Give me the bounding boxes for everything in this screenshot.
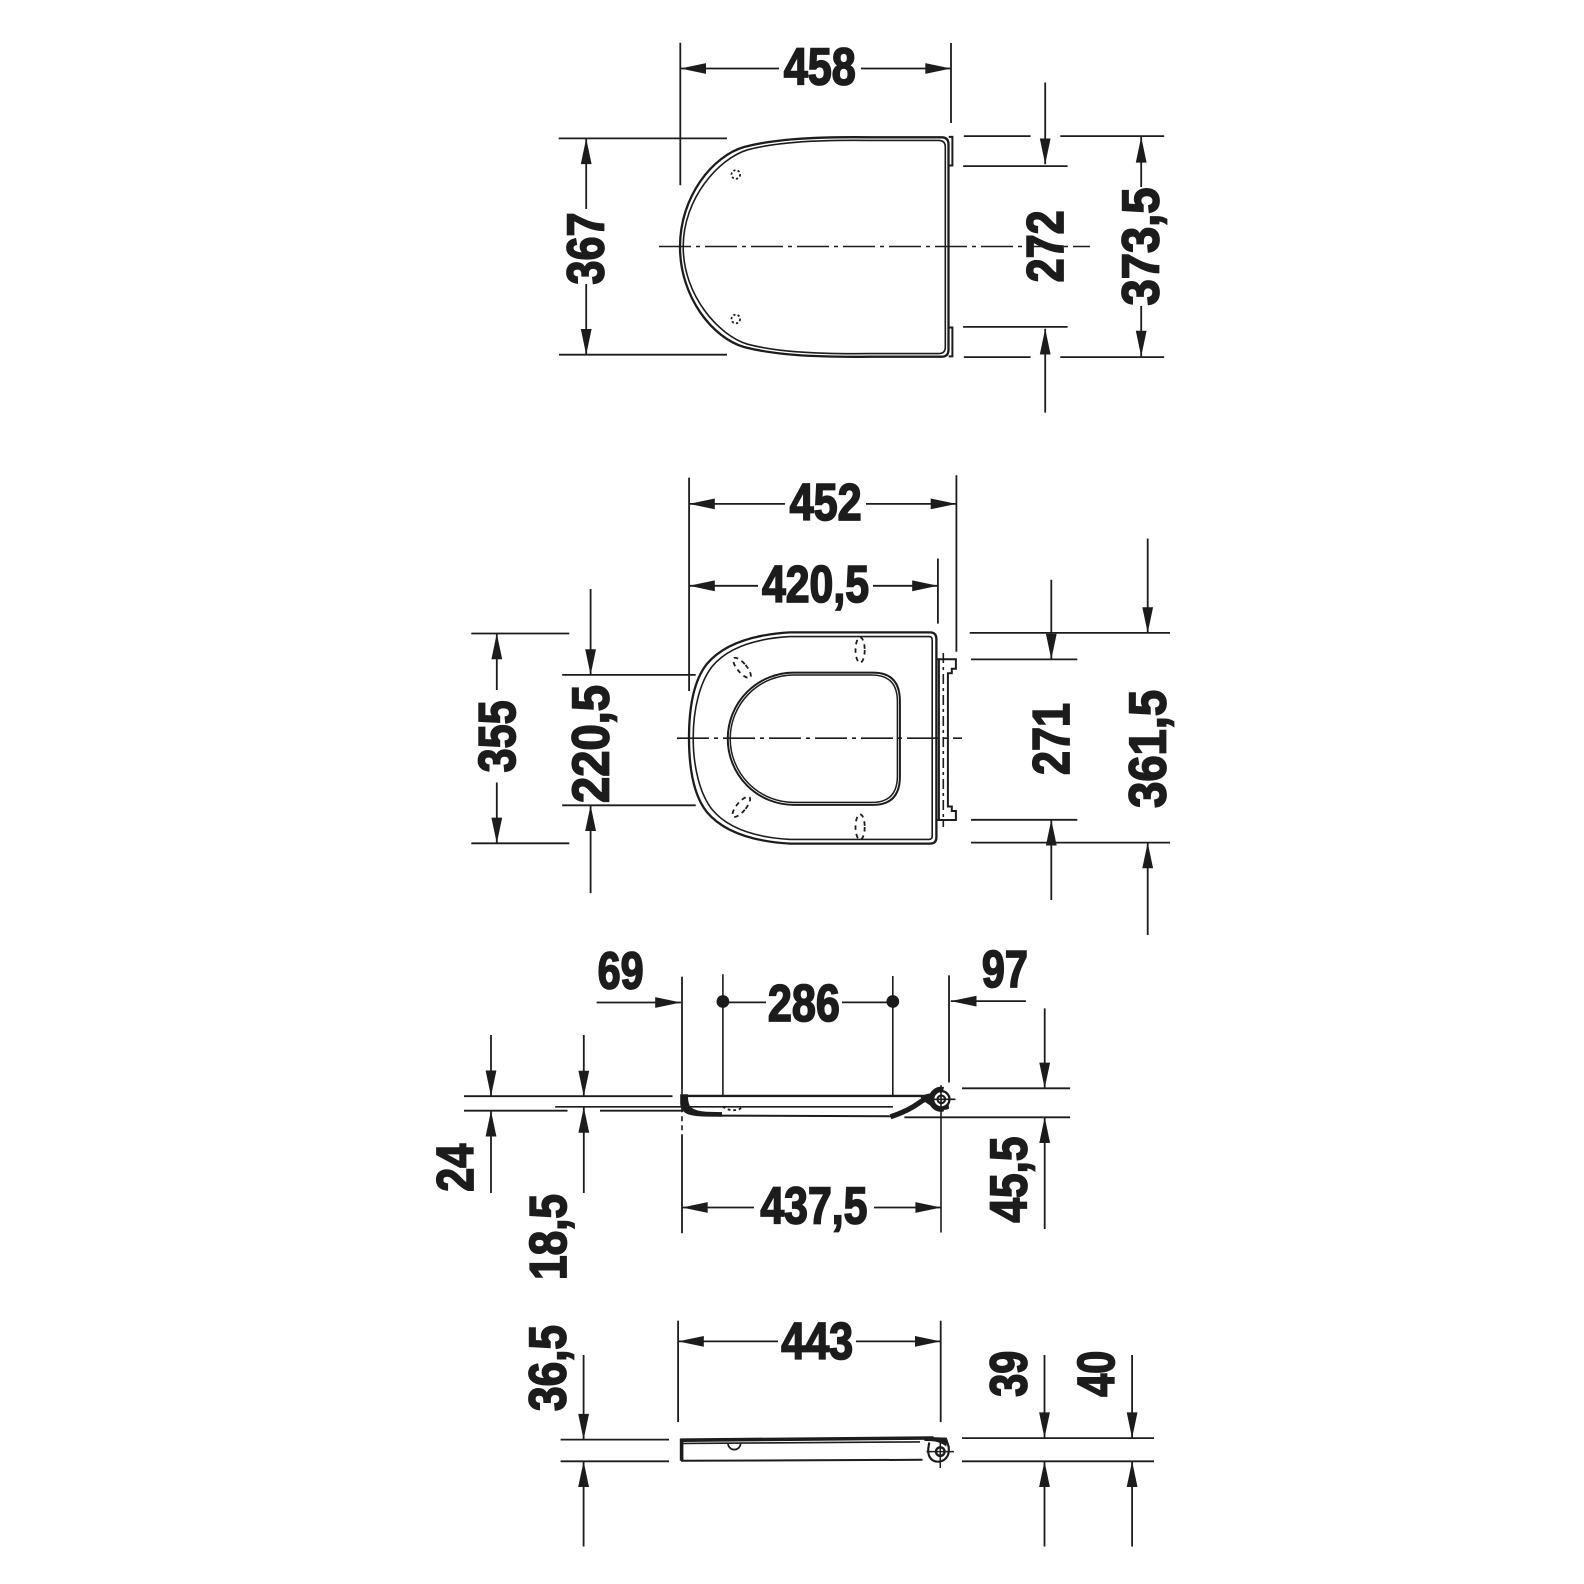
- svg-text:458: 458: [784, 39, 856, 97]
- svg-text:420,5: 420,5: [762, 556, 869, 614]
- svg-text:443: 443: [781, 1313, 853, 1371]
- svg-text:220,5: 220,5: [563, 685, 621, 803]
- svg-text:437,5: 437,5: [760, 1178, 867, 1236]
- svg-text:69: 69: [598, 943, 644, 1001]
- svg-text:24: 24: [427, 1144, 485, 1192]
- svg-text:271: 271: [1023, 703, 1081, 775]
- svg-text:97: 97: [982, 941, 1028, 999]
- svg-text:39: 39: [981, 1351, 1039, 1397]
- svg-text:45,5: 45,5: [981, 1137, 1039, 1223]
- svg-text:355: 355: [469, 700, 527, 772]
- svg-text:373,5: 373,5: [1113, 188, 1171, 306]
- svg-text:367: 367: [558, 213, 616, 285]
- svg-text:361,5: 361,5: [1120, 690, 1178, 808]
- svg-text:452: 452: [790, 474, 862, 532]
- svg-text:286: 286: [768, 975, 840, 1033]
- svg-text:272: 272: [1017, 210, 1075, 282]
- svg-text:40: 40: [1068, 1351, 1126, 1397]
- svg-text:36,5: 36,5: [520, 1325, 578, 1411]
- svg-text:18,5: 18,5: [520, 1194, 578, 1280]
